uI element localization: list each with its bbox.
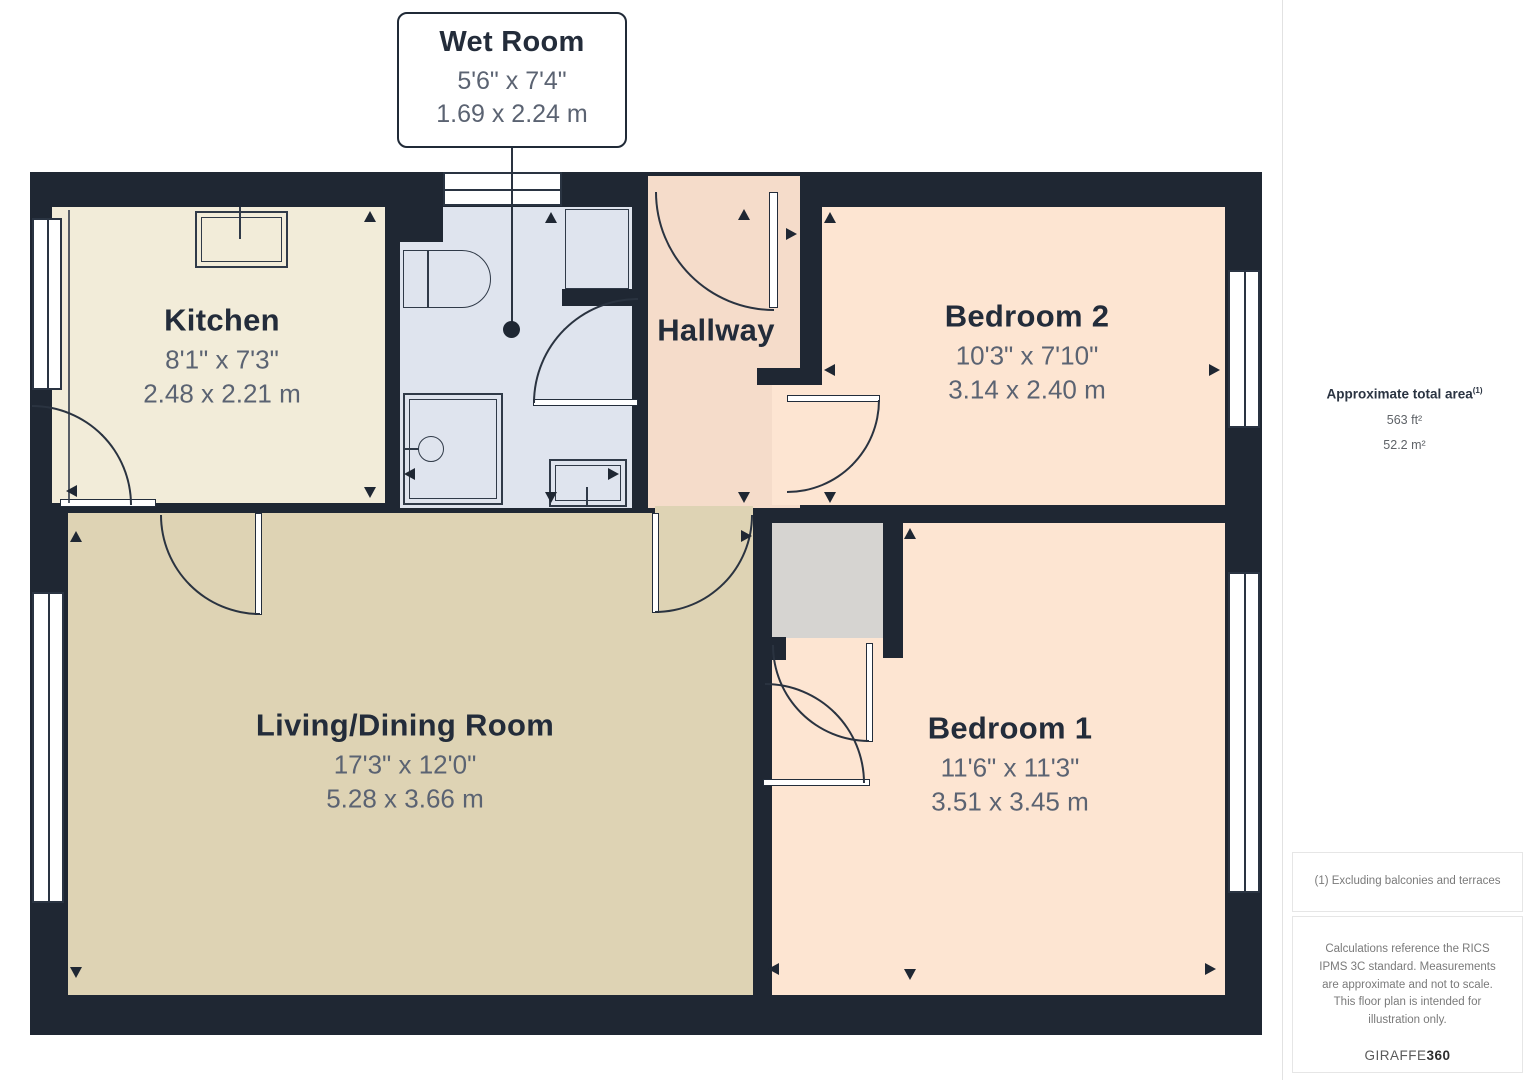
callout-leader-line	[511, 148, 513, 328]
brand-suffix: 360	[1426, 1048, 1450, 1063]
living-window	[32, 592, 64, 903]
bedroom1-wardrobe	[772, 523, 883, 638]
hallway-label: Hallway	[657, 313, 775, 354]
kitchen-name: Kitchen	[143, 303, 301, 339]
wetroom-cupboard	[565, 209, 629, 289]
total-area-m: 52.2 m²	[1282, 438, 1527, 452]
dimension-arrow	[545, 212, 557, 223]
dimension-arrow	[70, 967, 82, 978]
dimension-arrow	[741, 530, 752, 542]
dimension-arrow	[768, 963, 779, 975]
living-dims-metric: 5.28 x 3.66 m	[256, 783, 554, 817]
footnote-box: (1) Excluding balconies and terraces	[1292, 852, 1523, 912]
wetroom-name: Wet Room	[399, 26, 625, 59]
dimension-arrow	[738, 209, 750, 220]
bedroom2-window	[1228, 270, 1260, 428]
dimension-arrow	[824, 212, 836, 223]
bedroom2-dims-imperial: 10'3" x 7'10"	[945, 340, 1110, 374]
wetroom-callout: Wet Room 5'6" x 7'4" 1.69 x 2.24 m	[397, 12, 627, 148]
kitchen-sink	[195, 211, 288, 268]
dimension-arrow	[824, 492, 836, 503]
toilet	[403, 250, 491, 308]
wetroom-sink-tap	[586, 487, 588, 507]
dimension-arrow	[738, 492, 750, 503]
dimension-arrow	[1205, 963, 1216, 975]
wetroom-wall-notch	[400, 207, 443, 242]
kitchen-sink-tap	[239, 207, 241, 239]
dimension-arrow	[364, 487, 376, 498]
floorplan-page: Kitchen 8'1" x 7'3" 2.48 x 2.21 m Hallwa…	[0, 0, 1527, 1080]
disclaimer-text: Calculations reference the RICS IPMS 3C …	[1311, 941, 1504, 1030]
kitchen-dims-metric: 2.48 x 2.21 m	[143, 378, 301, 412]
bedroom1-dims-metric: 3.51 x 3.45 m	[928, 786, 1093, 820]
hallway-step-wall	[757, 368, 822, 385]
dimension-arrow	[545, 492, 557, 503]
bedroom2-label: Bedroom 2 10'3" x 7'10" 3.14 x 2.40 m	[945, 299, 1110, 408]
kitchen-label: Kitchen 8'1" x 7'3" 2.48 x 2.21 m	[143, 303, 301, 412]
hallway-bedroom2-wall	[800, 207, 822, 368]
bedroom1-name: Bedroom 1	[928, 711, 1093, 747]
kitchen-dims-imperial: 8'1" x 7'3"	[143, 344, 301, 378]
disclaimer-box: Calculations reference the RICS IPMS 3C …	[1292, 916, 1523, 1073]
wetroom-sink	[549, 459, 627, 507]
bedroom1-dims-imperial: 11'6" x 11'3"	[928, 752, 1093, 786]
toilet-tank-line	[427, 251, 429, 307]
bedroom2-dims-metric: 3.14 x 2.40 m	[945, 374, 1110, 408]
total-area-block: Approximate total area(1) 563 ft² 52.2 m…	[1282, 386, 1527, 452]
wetroom-window	[443, 172, 562, 206]
footnote-text: (1) Excluding balconies and terraces	[1314, 873, 1500, 891]
wetroom-dims-metric: 1.69 x 2.24 m	[399, 98, 625, 131]
dimension-arrow	[786, 228, 797, 240]
giraffe360-logo: GIRAFFE360	[1311, 1046, 1504, 1067]
living-label: Living/Dining Room 17'3" x 12'0" 5.28 x …	[256, 708, 554, 817]
wetroom-dims-imperial: 5'6" x 7'4"	[399, 65, 625, 98]
hallway-living-doorway	[655, 506, 753, 514]
area-footnote-marker: (1)	[1473, 386, 1483, 395]
kitchen-sink-basin	[201, 217, 282, 262]
shower-drain	[418, 436, 444, 462]
dimension-arrow	[364, 211, 376, 222]
dimension-arrow	[70, 531, 82, 542]
hallway-name: Hallway	[657, 313, 775, 349]
callout-leader-dot	[503, 321, 520, 338]
bedroom1-window	[1228, 572, 1260, 893]
dimension-arrow	[904, 969, 916, 980]
dimension-arrow	[904, 528, 916, 539]
total-area-title: Approximate total area(1)	[1282, 386, 1527, 402]
dimension-arrow	[824, 364, 835, 376]
dimension-arrow	[66, 485, 77, 497]
brand-name: GIRAFFE	[1364, 1048, 1426, 1063]
kitchen-window	[32, 218, 62, 390]
wardrobe-right-wall	[883, 523, 903, 658]
living-dims-imperial: 17'3" x 12'0"	[256, 749, 554, 783]
living-name: Living/Dining Room	[256, 708, 554, 744]
dimension-arrow	[1209, 364, 1220, 376]
bedroom2-name: Bedroom 2	[945, 299, 1110, 335]
total-area-ft: 563 ft²	[1282, 413, 1527, 427]
dimension-arrow	[608, 468, 619, 480]
dimension-arrow	[404, 468, 415, 480]
bedroom1-label: Bedroom 1 11'6" x 11'3" 3.51 x 3.45 m	[928, 711, 1093, 820]
